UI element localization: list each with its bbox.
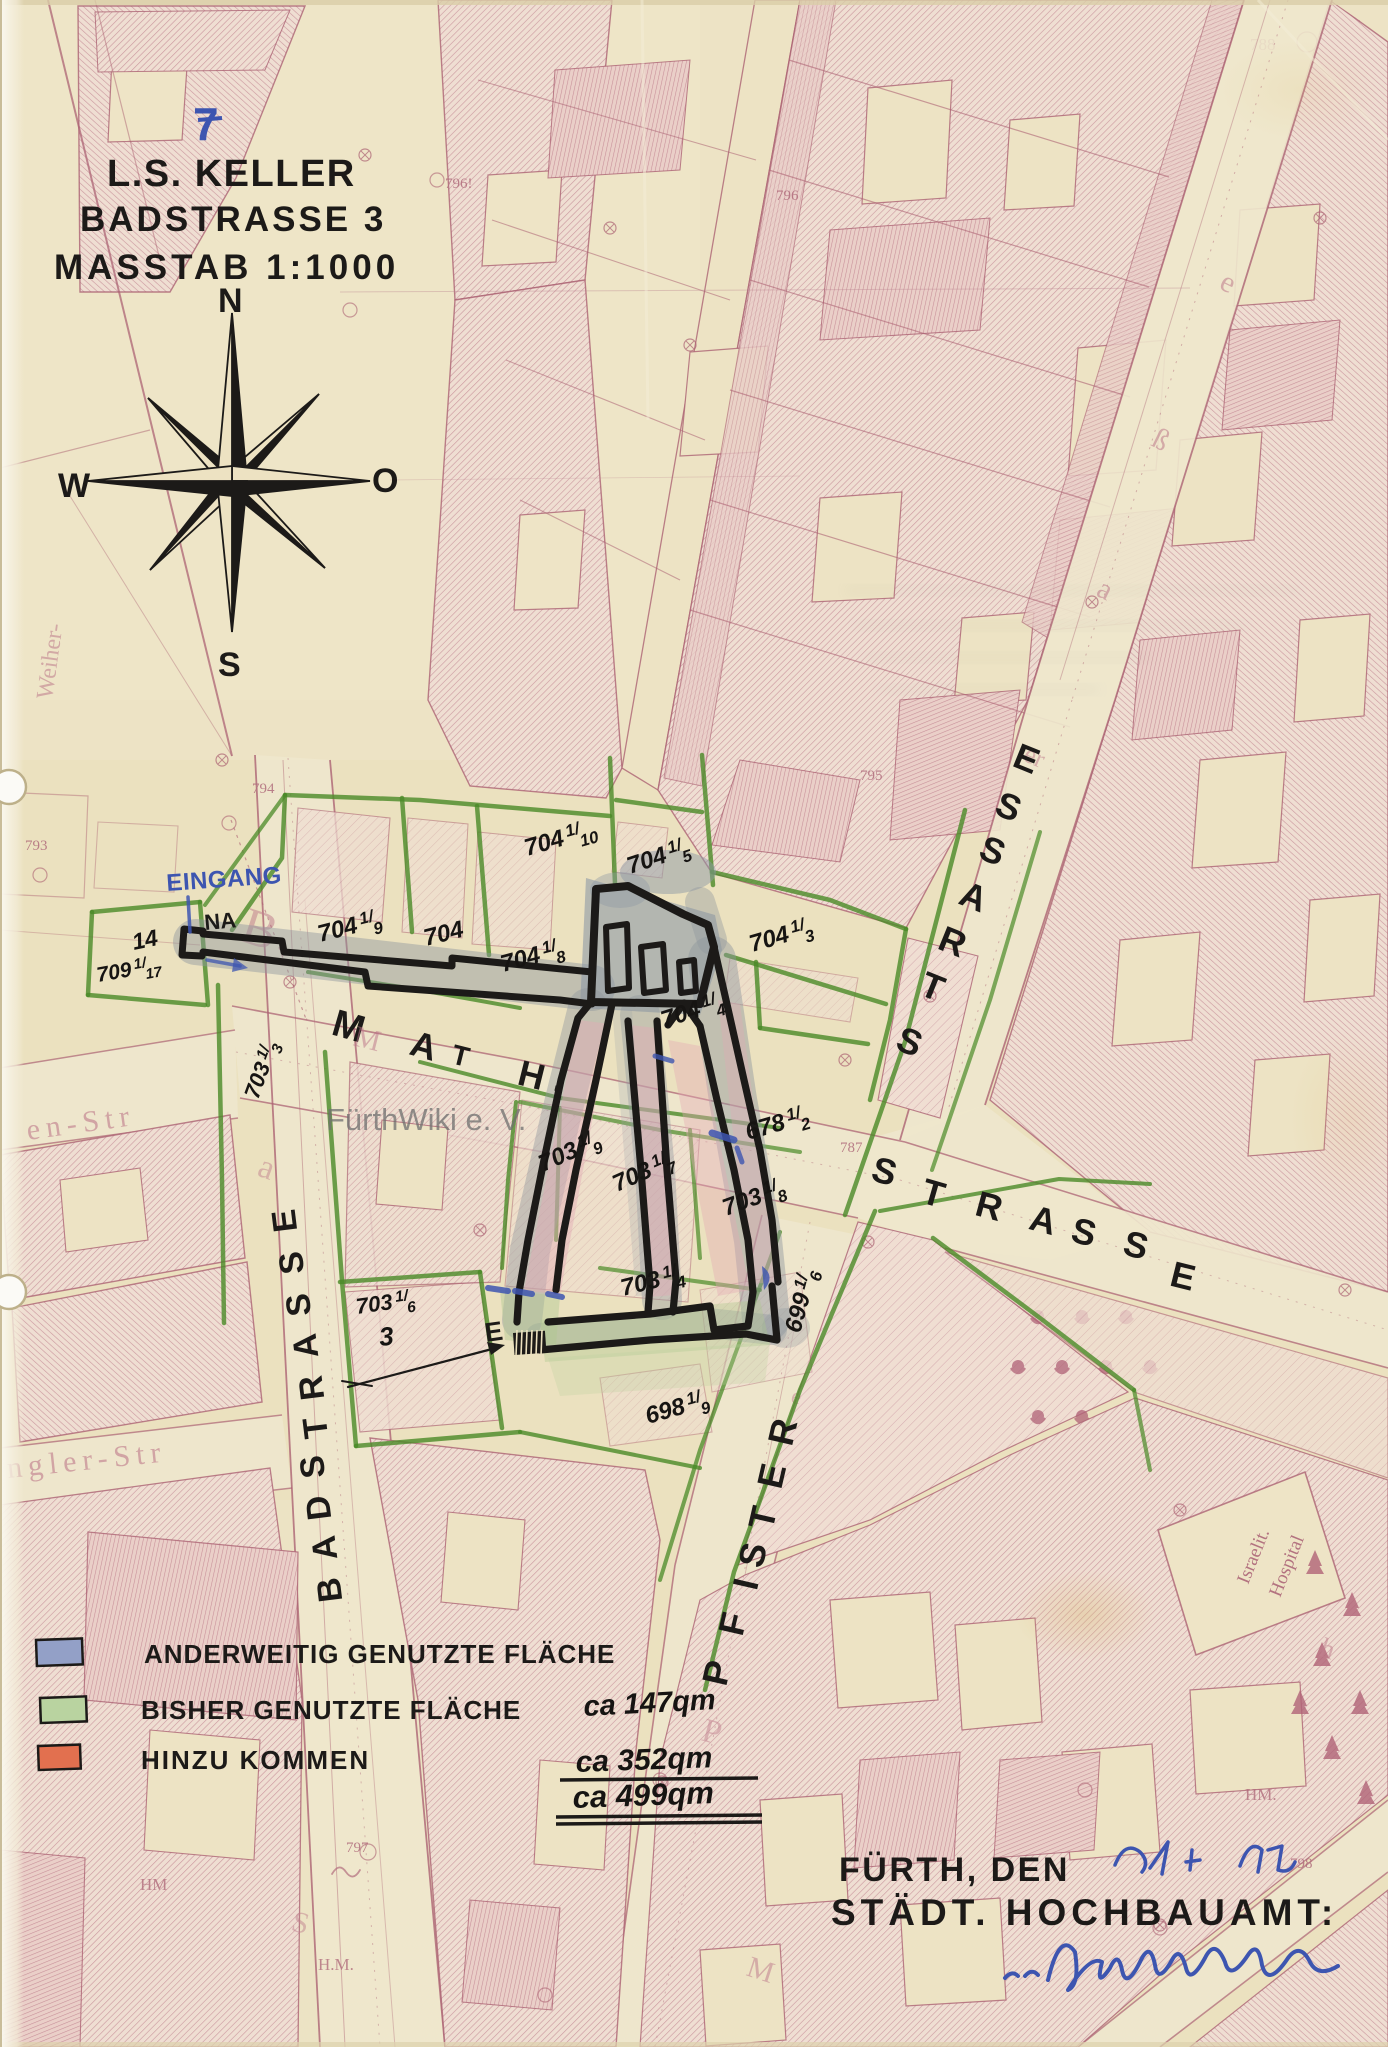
svg-text:S: S [218,646,241,684]
svg-text:ANDERWEITIG GENUTZTE FLÄCHE: ANDERWEITIG GENUTZTE FLÄCHE [144,1639,615,1669]
svg-text:7: 7 [193,98,219,150]
svg-text:B: B [310,1575,351,1604]
svg-text:O: O [372,462,398,500]
svg-text:E: E [265,1207,305,1234]
svg-text:STÄDT. HOCHBAUAMT:: STÄDT. HOCHBAUAMT: [831,1892,1338,1933]
svg-text:ca 352qm: ca 352qm [575,1741,713,1779]
svg-text:A: A [286,1331,327,1360]
svg-text:703: 703 [354,1289,394,1319]
svg-text:S: S [293,1453,333,1480]
svg-text:A: A [305,1533,346,1562]
svg-text:BISHER GENUTZTE FLÄCHE: BISHER GENUTZTE FLÄCHE [141,1695,521,1725]
svg-text:W: W [58,467,91,505]
svg-text:D: D [299,1493,340,1522]
svg-text:HINZU KOMMEN: HINZU KOMMEN [141,1745,370,1775]
svg-text:N: N [218,282,243,320]
svg-text:FürthWiki e. V.: FürthWiki e. V. [326,1102,526,1137]
svg-text:R: R [292,1373,333,1402]
svg-text:BADSTRASSE 3: BADSTRASSE 3 [80,200,386,239]
svg-text:S: S [279,1291,319,1318]
svg-text:L.S. KELLER: L.S. KELLER [107,153,356,195]
svg-text:S: S [272,1249,312,1276]
svg-text:NA: NA [203,907,237,935]
svg-text:FÜRTH, DEN: FÜRTH, DEN [839,1851,1070,1889]
svg-text:ca 499qm: ca 499qm [572,1775,714,1815]
